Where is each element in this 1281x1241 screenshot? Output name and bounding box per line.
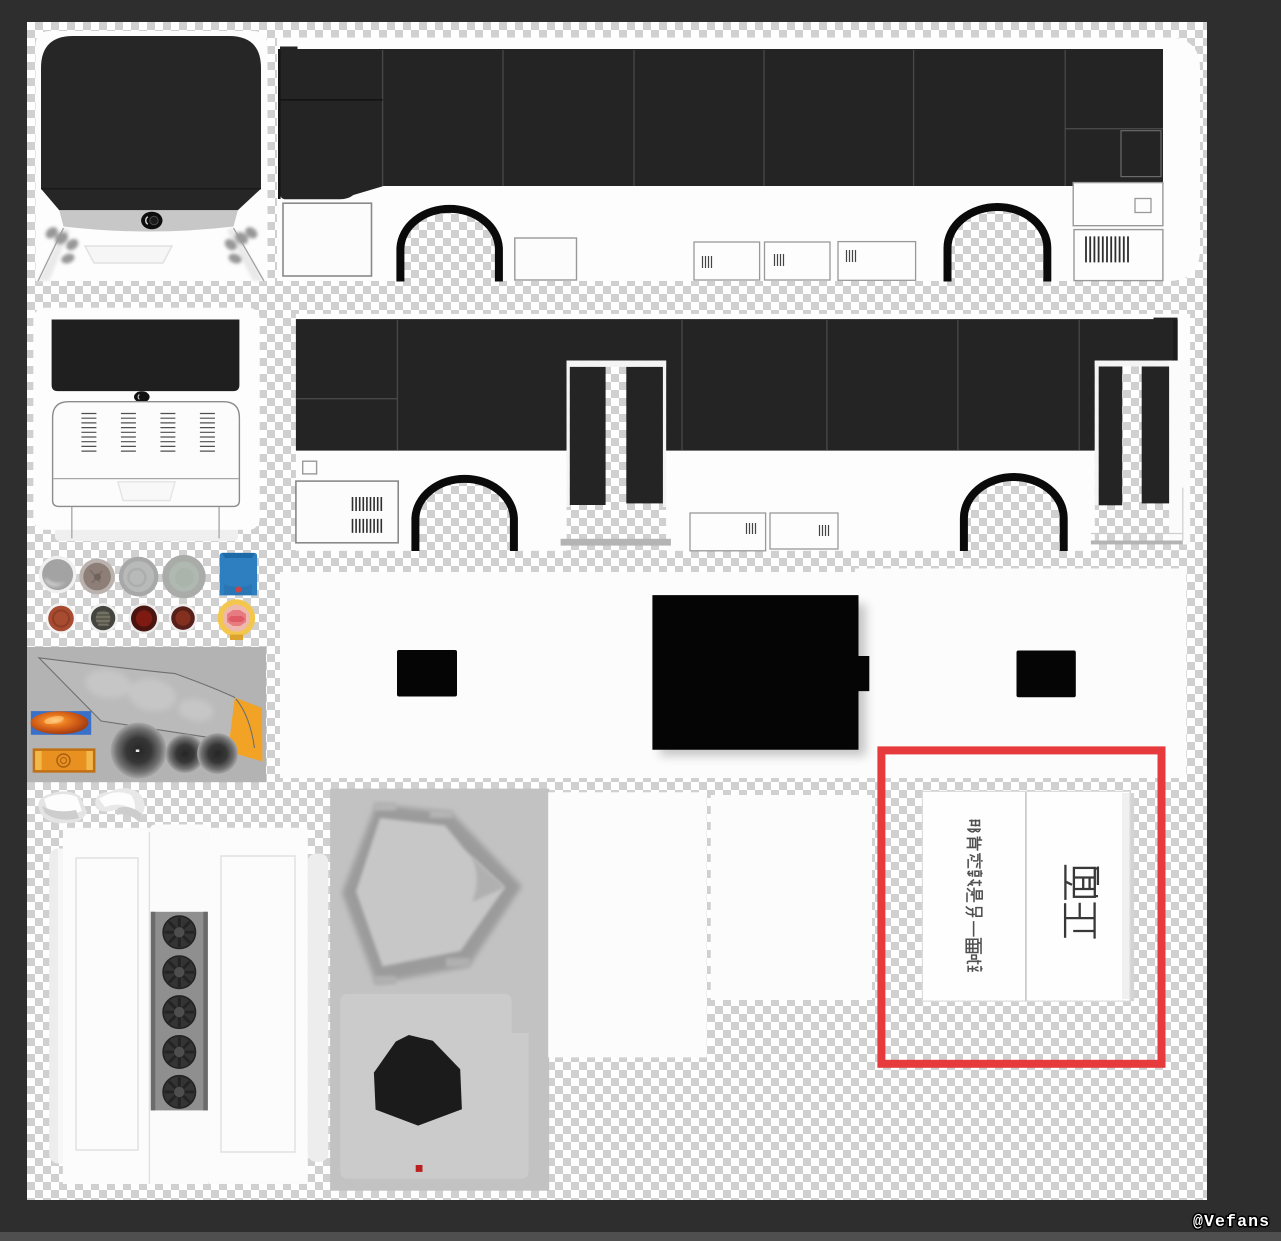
svg-text:@Vefans: @Vefans bbox=[1193, 1212, 1269, 1231]
